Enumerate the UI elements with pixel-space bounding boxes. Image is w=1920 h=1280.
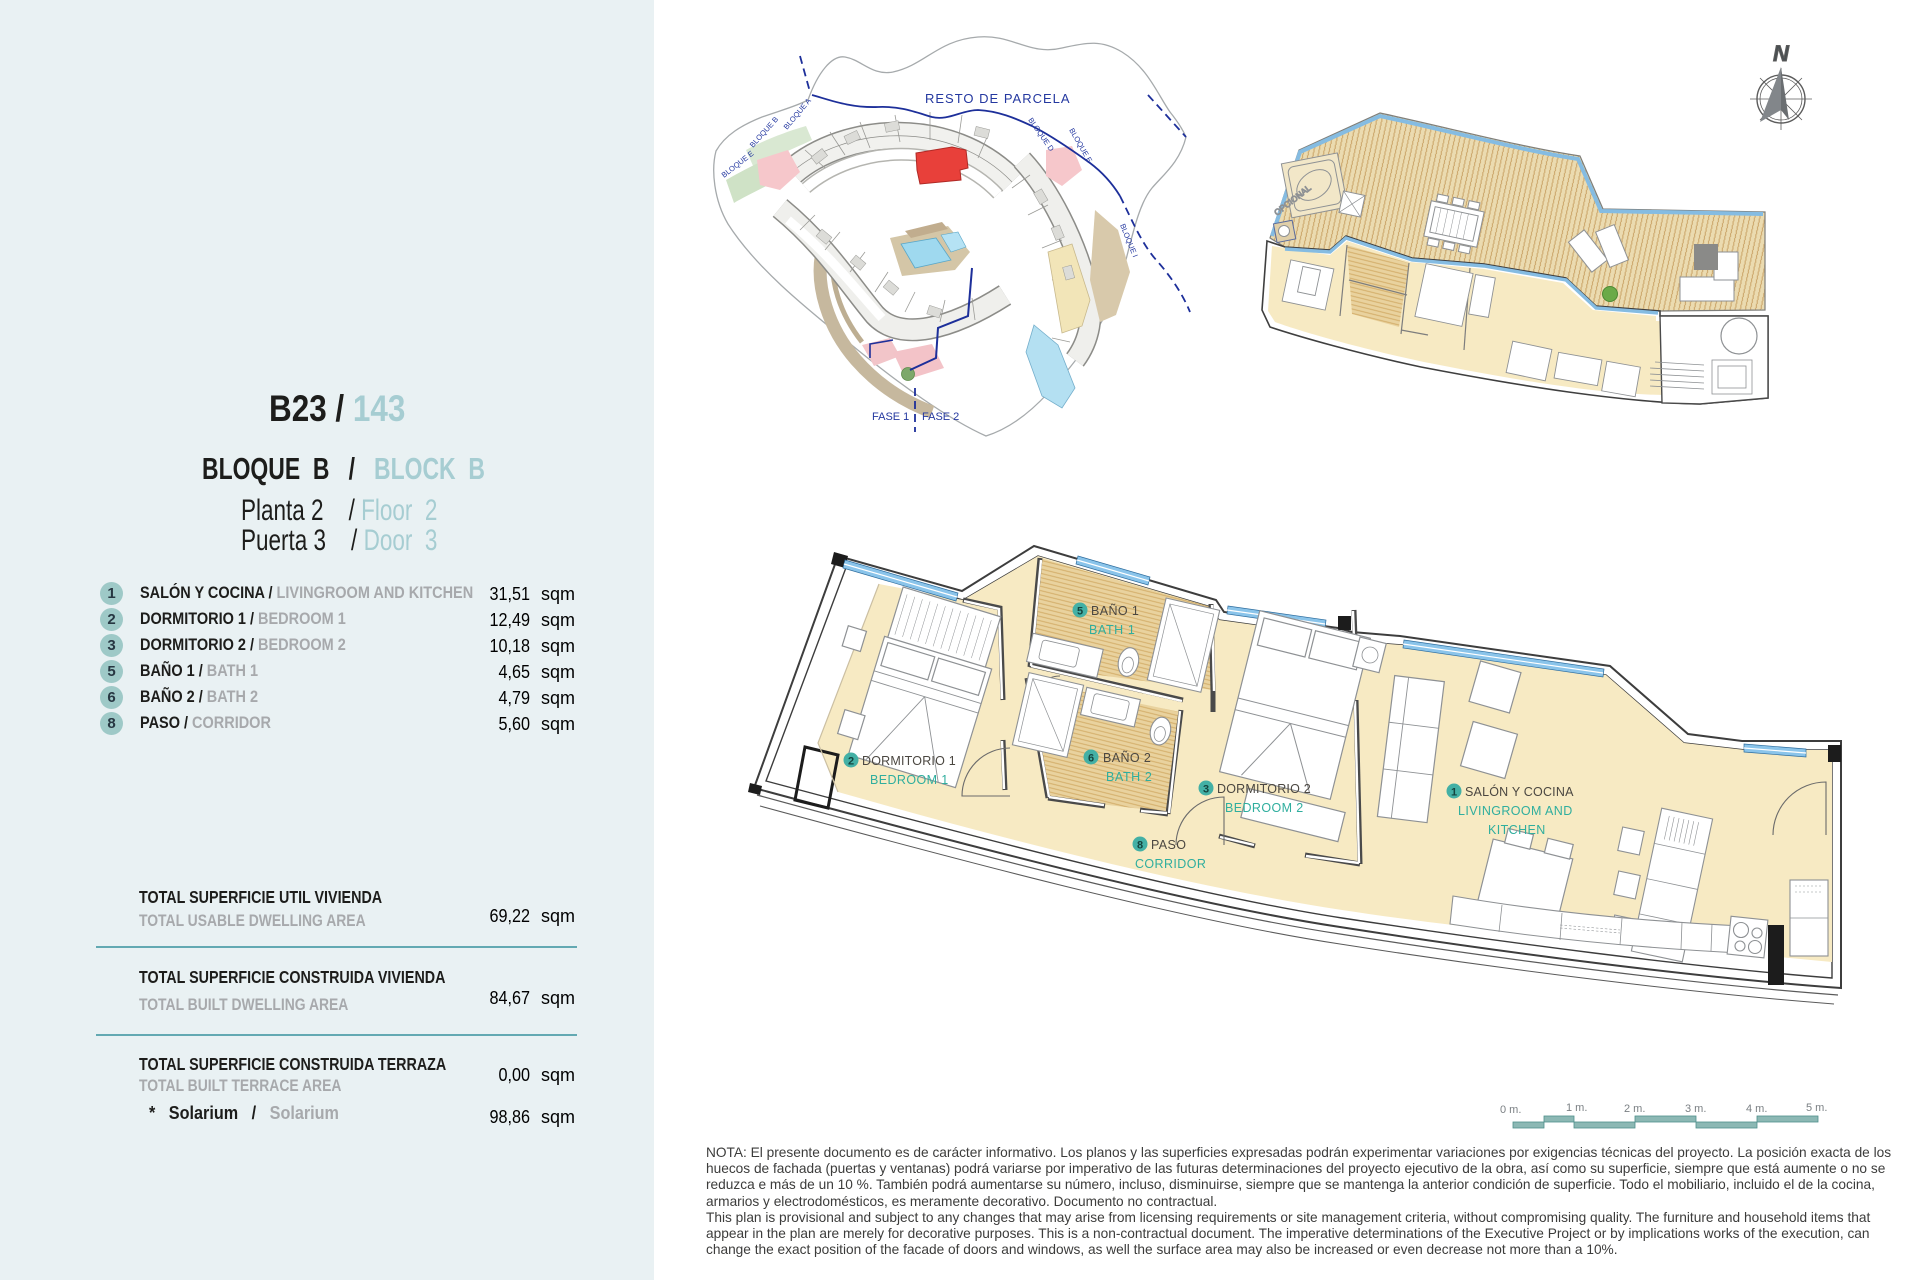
svg-text:5: 5 (1077, 606, 1083, 618)
svg-text:BATH 2: BATH 2 (1106, 770, 1152, 784)
svg-text:DORMITORIO 2: DORMITORIO 2 (1217, 782, 1311, 796)
svg-text:BATH 1: BATH 1 (1089, 623, 1135, 637)
svg-text:5 m.: 5 m. (1806, 1102, 1827, 1114)
svg-text:6: 6 (1088, 753, 1094, 765)
svg-text:RESTO DE PARCELA: RESTO DE PARCELA (925, 91, 1071, 106)
svg-text:1 m.: 1 m. (1566, 1102, 1587, 1114)
svg-text:FASE 1: FASE 1 (872, 411, 909, 423)
svg-text:4 m.: 4 m. (1746, 1103, 1767, 1115)
svg-text:N: N (1773, 41, 1790, 66)
svg-text:KITCHEN: KITCHEN (1488, 823, 1546, 837)
svg-text:2: 2 (848, 756, 854, 768)
svg-text:BEDROOM 1: BEDROOM 1 (870, 773, 949, 787)
svg-text:FASE 2: FASE 2 (922, 411, 959, 423)
svg-text:BAÑO 1: BAÑO 1 (1091, 604, 1139, 618)
svg-text:SALÓN Y COCINA: SALÓN Y COCINA (1465, 784, 1574, 799)
svg-text:8: 8 (1137, 840, 1143, 852)
svg-text:DORMITORIO 1: DORMITORIO 1 (862, 754, 956, 768)
svg-text:2 m.: 2 m. (1624, 1103, 1645, 1115)
svg-text:3 m.: 3 m. (1685, 1103, 1706, 1115)
svg-text:3: 3 (1203, 784, 1209, 796)
svg-text:CORRIDOR: CORRIDOR (1135, 857, 1206, 871)
svg-text:LIVINGROOM AND: LIVINGROOM AND (1458, 804, 1573, 818)
svg-text:BAÑO 2: BAÑO 2 (1103, 751, 1151, 765)
svg-text:BEDROOM 2: BEDROOM 2 (1225, 801, 1304, 815)
svg-text:0 m.: 0 m. (1500, 1104, 1521, 1116)
svg-text:PASO: PASO (1151, 838, 1186, 852)
svg-text:1: 1 (1451, 787, 1457, 799)
